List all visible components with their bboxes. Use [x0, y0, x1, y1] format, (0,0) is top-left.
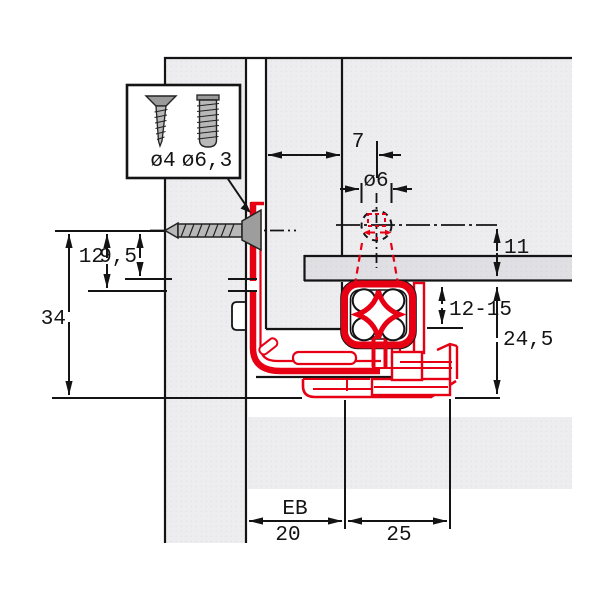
installation-diagram: ø4 ø6,3 — [0, 0, 600, 600]
dim-hole-diameter: ø6 — [363, 170, 388, 193]
screw-shaft — [178, 224, 242, 237]
dim-pin-length: 12-15 — [449, 299, 512, 322]
drawing-canvas: ø4 ø6,3 — [0, 0, 600, 600]
cabinet-system-hole — [232, 302, 246, 330]
dim-bottom-drop: 9,5 — [99, 246, 137, 269]
dim-total-drop: 34 — [41, 308, 66, 331]
label-screw-small: ø4 — [150, 150, 175, 173]
dim-rear-width: 25 — [386, 524, 411, 547]
dim-edge-to-hole: 7 — [352, 131, 365, 154]
dim-eb-value: 20 — [275, 524, 300, 547]
bracket-leg-slot — [293, 352, 356, 364]
drawer-bottom-panel — [304, 255, 572, 281]
lower-gray-band — [248, 417, 572, 489]
inset-screw-euro — [197, 95, 219, 147]
dim-axis-to-bottom: 11 — [504, 237, 529, 260]
label-screw-large: ø6,3 — [182, 150, 232, 173]
bracket-slot-cut — [247, 281, 258, 290]
dim-eb-label: EB — [282, 498, 307, 521]
dim-runner-clearance: 24,5 — [503, 329, 553, 352]
drawer-side-panel — [265, 57, 342, 331]
